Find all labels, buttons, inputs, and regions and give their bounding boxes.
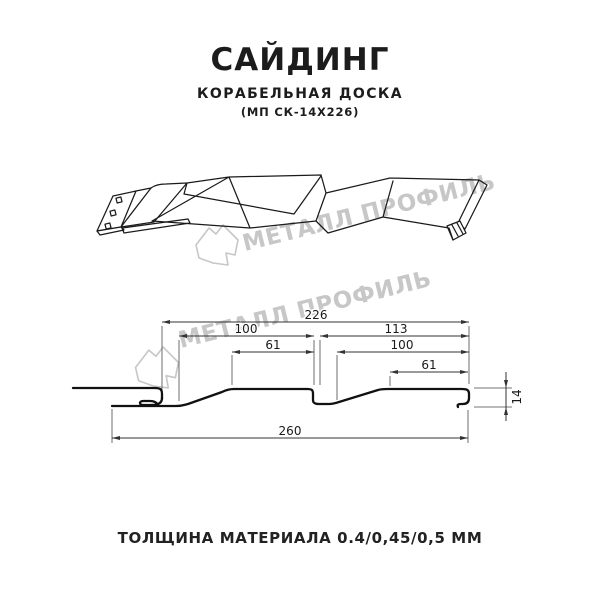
dimension-lines: 226 100 113 61 100 6 <box>112 308 524 440</box>
dim-226: 226 <box>305 308 328 322</box>
product-drawing-page: САЙДИНГ КОРАБЕЛЬНАЯ ДОСКА (МП СК-14Х226)… <box>0 0 600 600</box>
dim-61-left: 61 <box>265 338 280 352</box>
technical-drawing-svg: 226 100 113 61 100 6 <box>0 0 600 600</box>
profile-flange <box>73 388 162 399</box>
dim-61-right: 61 <box>421 358 436 372</box>
dim-100-left: 100 <box>235 322 258 336</box>
panel-cut-end <box>458 180 487 229</box>
dim-113: 113 <box>385 322 408 336</box>
dim-100-right: 100 <box>391 338 414 352</box>
profile-outline <box>73 388 469 407</box>
profile-hook-left <box>140 398 162 405</box>
perspective-view <box>97 175 487 240</box>
dim-260: 260 <box>279 424 302 438</box>
extension-lines <box>112 326 512 443</box>
profile-body <box>112 389 469 407</box>
dim-14: 14 <box>510 389 524 404</box>
cross-section-view: 226 100 113 61 100 6 <box>73 308 524 443</box>
